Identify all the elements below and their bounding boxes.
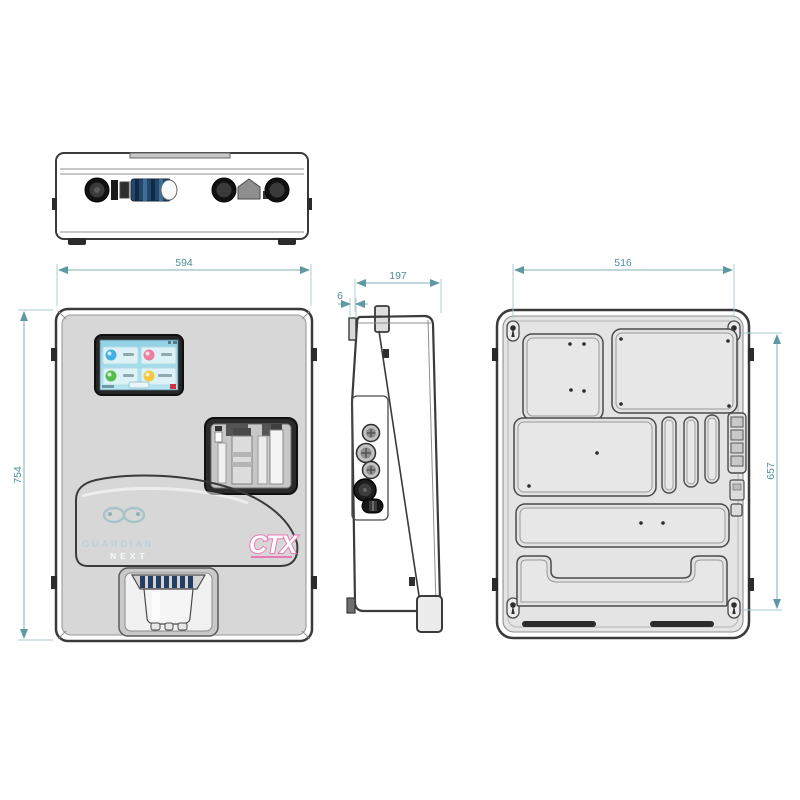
mitre-br [302,631,310,639]
cable-gland-2 [212,178,236,202]
dim-label-657: 657 [765,462,777,480]
hinge-right-top [311,348,317,361]
hinge-right-bottom [311,576,317,589]
indicator-sphere-blue-icon [106,350,117,361]
side-foot [347,598,355,613]
status-icon-1 [168,341,171,344]
keyhole-mount-br [728,598,740,618]
recess-middle [514,418,656,496]
dimension-side-depth: 197 [355,270,441,313]
recess-top-right [612,329,737,413]
side-clip-right [307,198,312,210]
bracket-hook-top [383,349,389,358]
dimension-side-lip: 6 [337,290,368,318]
dimension-front-width: 594 [57,257,311,306]
dim-label-754: 754 [12,466,24,484]
pump-head-blue [131,179,177,201]
bottom-slot-left [522,621,596,627]
tile-value-bar [161,353,172,356]
status-icon-2 [173,341,177,344]
power-connector [354,479,376,501]
touchscreen [95,335,183,395]
keyhole-mount-tl [507,321,519,341]
product-name-line1: GUARDIAN [82,539,154,550]
front-view: GUARDIAN NEXT CTX [51,309,317,641]
screen-button [129,382,149,388]
funnel-cup [144,589,193,624]
cable-gland-1 [85,178,109,202]
dim-label-516: 516 [614,257,632,269]
indicator-sphere-green-icon [106,371,117,382]
label-tag [215,432,222,442]
dimension-front-height: 754 [12,310,53,640]
ctx-logo-text: CTX [249,531,298,559]
recess-top-left [523,334,603,420]
back-hinge-rb [748,578,754,591]
wall-bracket-tab [375,306,389,332]
front-lip [349,318,356,340]
screen-tile-1 [103,347,138,364]
tile-value-bar [158,374,172,377]
flow-cell [119,568,218,636]
tile-value-bar [123,374,134,377]
ctx-tagline-bar [251,556,292,558]
front-face-edge [379,331,421,609]
product-name-line2: NEXT [110,551,149,561]
vent-slot-2 [684,417,698,487]
hinge-left-bottom [51,576,57,589]
screen-tile-2 [141,347,176,364]
cylindrical-connector [362,499,383,513]
mitre-bl [58,631,66,639]
bracket-hook-bottom [409,577,415,586]
top-view [52,153,312,245]
back-view [492,310,754,638]
screen-alarm-icon [170,384,176,389]
side-view [347,306,442,632]
tile-value-bar [123,353,134,356]
indicator-sphere-pink-icon [144,350,155,361]
back-hinge-rt [748,348,754,361]
hex-nut-gland [238,179,260,199]
back-hinge-lt [492,348,498,361]
hinge-left-top [51,348,57,361]
connector-block [111,180,118,200]
wall-rail-foot [417,596,442,632]
socket-connector-2 [357,444,376,463]
vent-slot-1 [662,417,676,493]
electrode-probe-2 [232,428,252,484]
electrode-probe-3 [258,436,267,484]
vent-slot-3 [705,415,719,483]
dim-label-6: 6 [337,290,343,302]
mitre-tr [302,311,310,319]
label-clip [215,426,222,431]
dim-label-594: 594 [175,257,193,269]
funnel-foot-2 [165,623,173,630]
sensor-window [205,418,297,494]
side-clip-left [52,198,57,210]
recess-wide [516,504,729,547]
lid-recess [130,153,230,158]
screen-footer-bar [102,385,114,388]
socket-connector-1 [363,425,380,442]
foot-left [68,238,86,245]
foot-right [278,238,296,245]
electrode-probe-1 [218,443,226,483]
mitre-tl [58,311,66,319]
funnel-foot-3 [178,623,187,630]
funnel-highlight [152,592,160,620]
ctx-logo: CTX [249,531,298,559]
cable-gland-3 [265,178,289,202]
connector-block-2 [120,182,129,198]
indicator-sphere-yellow-icon [144,371,155,382]
dim-label-197: 197 [389,270,407,282]
socket-connector-3 [363,462,380,479]
bottom-slot-right [650,621,714,627]
technical-drawing-canvas: GUARDIAN NEXT CTX [0,0,800,800]
funnel-foot-1 [151,623,160,630]
back-hinge-lb [492,578,498,591]
electrode-probe-4 [270,424,283,484]
dimension-back-height: 657 [741,333,782,610]
drawing-svg: GUARDIAN NEXT CTX [0,0,800,800]
